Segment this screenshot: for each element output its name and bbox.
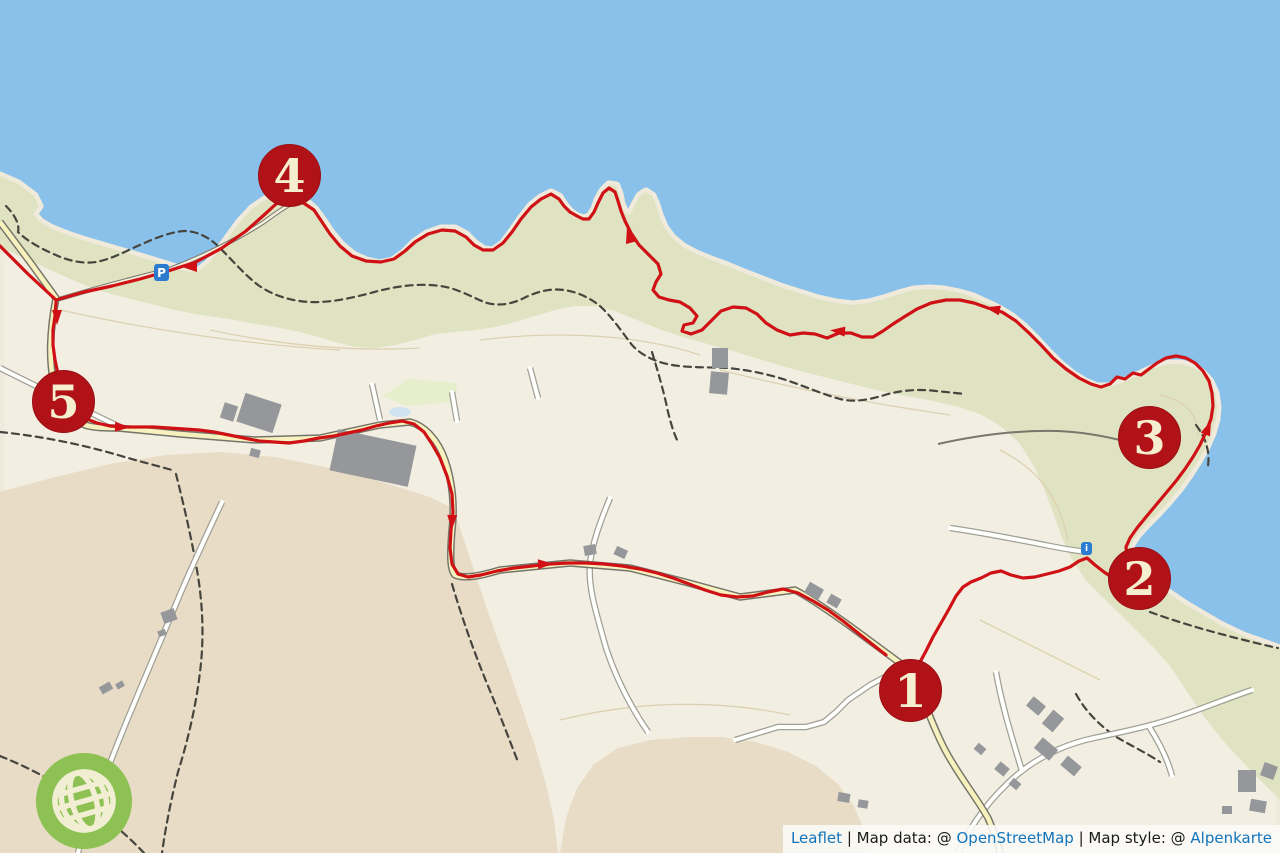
- attribution-bar: Leaflet | Map data: @ OpenStreetMap | Ma…: [783, 825, 1280, 853]
- map-style-label: Map style: @: [1088, 829, 1185, 847]
- route-marker-2[interactable]: 2: [1108, 547, 1171, 610]
- route-marker-4[interactable]: 4: [258, 144, 321, 207]
- alpenkarte-link[interactable]: Alpenkarte: [1190, 829, 1272, 847]
- leaflet-link[interactable]: Leaflet: [791, 829, 842, 847]
- map[interactable]: 12345Pi Leaflet | Map data: @ OpenStreet…: [0, 0, 1280, 853]
- alpenkarte-logo-globe-icon: [34, 751, 134, 851]
- route-marker-5[interactable]: 5: [32, 370, 95, 433]
- attribution-separator: |: [1079, 829, 1084, 847]
- map-tiles: [0, 0, 1280, 853]
- attribution-separator: |: [847, 829, 852, 847]
- pond: [389, 407, 411, 417]
- route-marker-3[interactable]: 3: [1118, 406, 1181, 469]
- map-data-label: Map data: @: [857, 829, 952, 847]
- route-marker-1[interactable]: 1: [879, 659, 942, 722]
- openstreetmap-link[interactable]: OpenStreetMap: [956, 829, 1073, 847]
